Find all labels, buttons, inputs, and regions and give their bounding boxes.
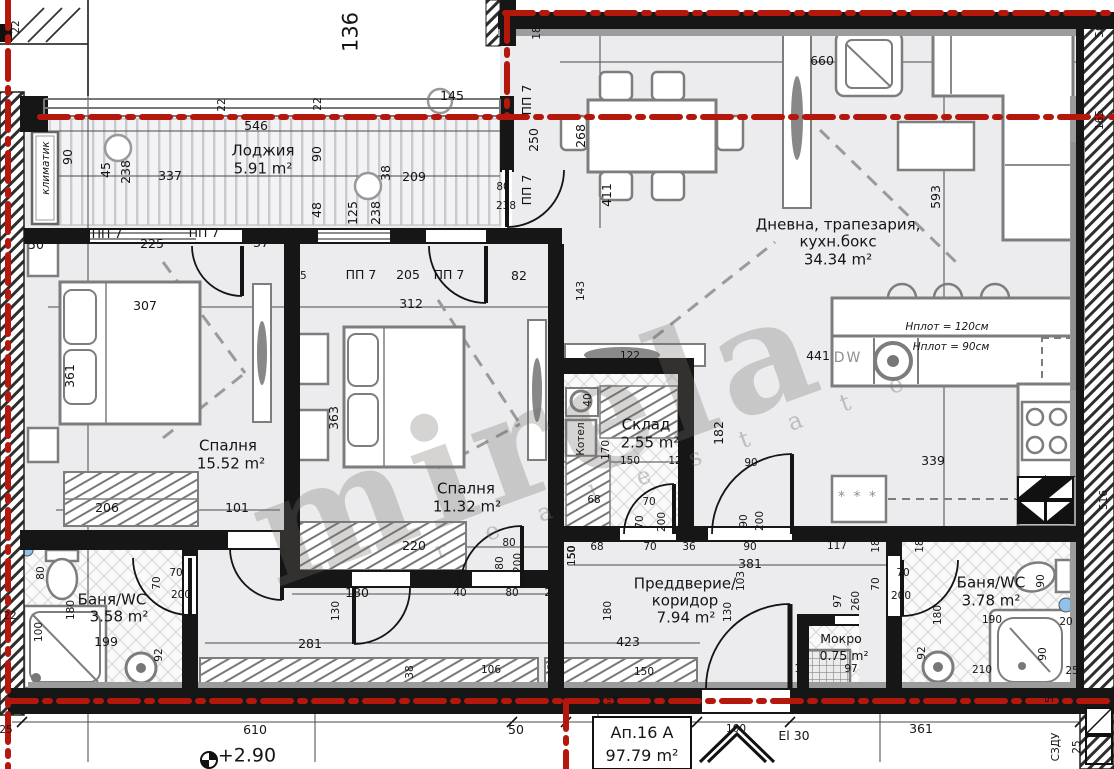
dimension-label: 22: [313, 97, 324, 110]
dimension-label: 145: [440, 90, 464, 103]
ac-unit-label: климатик: [41, 141, 52, 195]
dimension-label: 307: [133, 300, 157, 313]
dimension-label: 210: [972, 665, 992, 676]
dimension-label: 70: [643, 542, 656, 553]
boiler-label: Котел: [576, 422, 587, 455]
room-area: 0.75 m²: [820, 650, 869, 663]
opening-label: ПП 7: [434, 269, 465, 282]
dimension-label: 150: [567, 546, 578, 566]
dimension-label: 80: [496, 182, 509, 193]
room-label: Баня/WC: [78, 593, 147, 608]
dimension-label: 100: [34, 622, 45, 642]
room-area: 34.34 m²: [804, 253, 872, 268]
dimension-label: 20: [1059, 617, 1072, 628]
dimension-label: 339: [921, 455, 945, 468]
dimension-label: 101: [225, 502, 249, 515]
room-area: 7.94 m²: [657, 611, 716, 626]
dimension-label: 238: [496, 201, 516, 212]
dimension-label: 150: [634, 667, 654, 678]
opening-label: ПП 7: [189, 227, 220, 240]
dimension-label: 220: [402, 540, 426, 553]
dimension-label: 36: [682, 542, 695, 553]
room-label: Мокро: [820, 633, 862, 646]
dimension-label: 170: [601, 440, 612, 460]
room-area: 3.58 m²: [90, 610, 149, 625]
dimension-label: 546: [244, 120, 268, 133]
dimension-label: 37: [253, 237, 269, 250]
dimension-label: 57: [544, 230, 560, 243]
dimension-label: 50: [28, 239, 44, 252]
dimension-label: 25: [607, 694, 618, 707]
dimension-label: 593: [930, 185, 943, 209]
dimension-label: 22: [3, 611, 16, 622]
dimension-label: 80: [495, 556, 506, 569]
dimension-label: 12: [668, 456, 681, 467]
room-label: Баня/WC: [957, 576, 1026, 591]
dimension-label: 40: [583, 393, 594, 406]
dimension-label: коридор: [652, 594, 719, 609]
dimension-label: 205: [396, 269, 420, 282]
dimension-label: 40: [453, 588, 466, 599]
dimension-label: 70: [635, 515, 646, 528]
dimension-label: 80: [36, 566, 47, 579]
dimension-label: 363: [328, 406, 341, 430]
dimension-label: 125: [347, 201, 360, 225]
room-label: Дневна, трапезария,: [756, 218, 921, 233]
label-layer: 221361455462222климатик9045238337Лоджия5…: [0, 0, 1114, 769]
dimension-label: 200: [171, 590, 191, 601]
room-area: 15.52 m²: [197, 457, 265, 472]
dimension-label: 22: [11, 20, 22, 33]
dimension-label: 50: [508, 724, 524, 737]
dimension-label: 25: [1072, 740, 1083, 753]
dimension-label: 441: [806, 350, 830, 363]
dimension-label: 165: [1095, 110, 1106, 130]
dimension-label: 25: [1065, 666, 1078, 677]
dimension-label: 48: [311, 202, 324, 218]
floor-plan: mirela r e a l e s t a t e 2213614554622…: [0, 0, 1114, 769]
dimension-label: 361: [909, 723, 933, 736]
dimension-label: 200: [513, 553, 524, 573]
dimension-label: 103: [736, 571, 747, 591]
dimension-label: 90: [744, 458, 757, 469]
dimension-label: 190: [982, 615, 1002, 626]
dimension-label: 209: [402, 171, 426, 184]
dimension-label: 106: [481, 665, 501, 676]
dimension-label: 180: [933, 605, 944, 625]
dimension-label: 90: [311, 146, 324, 162]
dimension-label: 180: [66, 600, 77, 620]
dimension-label: 18: [532, 26, 543, 39]
apartment-label: Ап.16 А: [611, 725, 674, 741]
dimension-label: 45: [100, 162, 113, 178]
dimension-label: 90: [1036, 574, 1047, 587]
dishwasher-label: DW: [834, 351, 863, 365]
door-rating-label: El 30: [778, 730, 809, 743]
dimension-label: 18: [871, 539, 882, 552]
dimension-label: 90: [743, 542, 756, 553]
dimension-label: 18: [915, 539, 926, 552]
dimension-label: 281: [298, 638, 322, 651]
dimension-label: 70: [152, 576, 163, 589]
opening-label: ПП 7: [92, 228, 123, 241]
dimension-label: 312: [399, 298, 423, 311]
dimension-label: 25: [293, 271, 306, 282]
dimension-label: 15: [794, 664, 807, 675]
dimension-label: 90: [739, 514, 750, 527]
dimension-label: 200: [891, 591, 911, 602]
dimension-label: 70: [896, 568, 909, 579]
dimension-label: 92: [917, 646, 928, 659]
dimension-label: 50: [546, 665, 559, 676]
dimension-label: 100: [726, 724, 746, 735]
fridge-label: * * *: [838, 490, 878, 504]
dimension-label: 117: [827, 541, 847, 552]
dimension-label: 25: [0, 725, 13, 736]
dimension-label: 130: [331, 601, 342, 621]
dimension-label: 268: [575, 124, 588, 148]
level-label: +2.90: [218, 747, 276, 766]
room-label: Склад: [622, 418, 671, 433]
dimension-label: 516: [1099, 490, 1110, 510]
apartment-area: 97.79 m²: [606, 748, 679, 764]
room-area: 2.55 m²: [621, 436, 680, 451]
dimension-label: 25: [1045, 696, 1056, 709]
room-label: Спалня: [437, 482, 495, 497]
room-area: 11.32 m²: [433, 500, 501, 515]
dimension-label: 411: [601, 183, 614, 207]
dimension-label: 361: [64, 364, 77, 388]
dimension-label: 97: [833, 594, 844, 607]
dimension-label: 68: [587, 495, 600, 506]
dimension-label: 200: [755, 511, 766, 531]
opening-label: ПП 7: [521, 175, 534, 206]
dimension-label: 97: [844, 664, 857, 675]
dimension-label: 22: [217, 98, 228, 111]
room-area: 3.78 m²: [962, 594, 1021, 609]
dimension-label: 80: [505, 588, 518, 599]
dimension-label: 180: [603, 601, 614, 621]
room-label: Лоджия: [231, 144, 294, 159]
dimension-label: 381: [738, 558, 762, 571]
dimension-label: 82: [511, 270, 527, 283]
dimension-label: 199: [94, 636, 118, 649]
dimension-label: 610: [243, 724, 267, 737]
dimension-label: 150: [620, 456, 640, 467]
dimension-label: 660: [810, 55, 834, 68]
dimension-label: 260: [851, 591, 862, 611]
dimension-label: 38: [380, 165, 393, 181]
dimension-label: 180: [345, 587, 369, 600]
dimension-label: 70: [871, 577, 882, 590]
dimension-label: 143: [576, 281, 587, 301]
dimension-label: 250: [528, 128, 541, 152]
dimension-label: 90: [1038, 647, 1049, 660]
room-label: Спалня: [199, 439, 257, 454]
dimension-label: 206: [95, 502, 119, 515]
opening-label: ПП 7: [521, 85, 534, 116]
dimension-label: 200: [657, 512, 668, 532]
dimension-label: 423: [616, 636, 640, 649]
dimension-label: 136: [341, 12, 362, 52]
dimension-label: 225: [140, 238, 164, 251]
dimension-label: 18: [156, 537, 167, 550]
dimension-label: 50: [1095, 24, 1106, 37]
dimension-label: 68: [590, 542, 603, 553]
shaft-label: СЗДУ: [1051, 733, 1062, 762]
dimension-label: 182: [713, 421, 726, 445]
counter-height-label: Hплот = 120см: [905, 322, 988, 333]
dimension-label: 70: [169, 568, 182, 579]
dimension-label: 130: [723, 602, 734, 622]
dimension-label: 38: [405, 665, 416, 678]
dimension-label: 70: [642, 497, 655, 508]
room-area: 5.91 m²: [234, 162, 293, 177]
counter-height-label: Hплот = 90см: [913, 342, 990, 353]
dimension-label: 92: [154, 648, 165, 661]
dimension-label: кухн.бокс: [799, 235, 876, 250]
opening-label: ПП 7: [346, 269, 377, 282]
dimension-label: 238: [120, 160, 133, 184]
dimension-label: 24: [544, 588, 557, 599]
dimension-label: 238: [370, 201, 383, 225]
dimension-label: 80: [502, 538, 515, 549]
dimension-label: 90: [62, 149, 75, 165]
dimension-label: 122: [620, 351, 640, 362]
dimension-label: 337: [158, 170, 182, 183]
room-label: Преддверие/: [634, 577, 736, 592]
